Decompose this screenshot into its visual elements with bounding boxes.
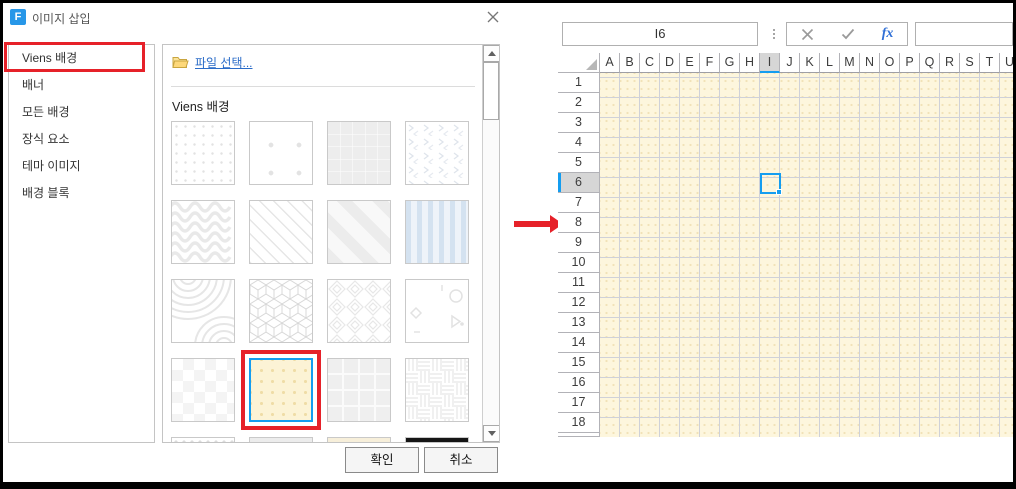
row-header-partial [558,433,600,437]
row-header-8[interactable]: 8 [558,213,600,233]
column-header-S[interactable]: S [960,53,980,73]
row-header-6[interactable]: 6 [558,173,600,193]
pattern-thumb-waves[interactable] [171,200,235,264]
column-header-U[interactable]: U [1000,53,1013,73]
pattern-thumb-chevrons[interactable] [405,121,469,185]
sidebar-item-0[interactable]: Viens 배경 [9,45,154,72]
column-header-A[interactable]: A [600,53,620,73]
column-header-L[interactable]: L [820,53,840,73]
pattern-thumb-dotted-strip[interactable] [171,437,235,443]
pattern-thumb-cream-strip[interactable] [327,437,391,443]
row-header-15[interactable]: 15 [558,353,600,373]
row-header-1[interactable]: 1 [558,73,600,93]
column-header-N[interactable]: N [860,53,880,73]
formula-toolbar: fx [786,22,908,46]
column-header-M[interactable]: M [840,53,860,73]
row-header-17[interactable]: 17 [558,393,600,413]
row-header-3[interactable]: 3 [558,113,600,133]
column-header-G[interactable]: G [720,53,740,73]
row-header-14[interactable]: 14 [558,333,600,353]
pattern-thumb-weave[interactable] [405,358,469,422]
column-headers: ABCDEFGHIJKLMNOPQRSTU [600,53,1013,73]
pattern-section-title: Viens 배경 [172,96,230,115]
row-header-4[interactable]: 4 [558,133,600,153]
sidebar-item-2[interactable]: 모든 배경 [9,99,154,126]
scroll-down-icon[interactable] [483,425,500,442]
formula-input[interactable] [915,22,1013,46]
row-header-12[interactable]: 12 [558,293,600,313]
name-box-menu-icon[interactable] [770,25,778,43]
sidebar-item-5[interactable]: 배경 블록 [9,180,154,207]
dialog-sidebar: Viens 배경배너모든 배경장식 요소테마 이미지배경 블록 [8,44,155,443]
selected-cell-outline[interactable] [760,173,781,194]
cell-name-box[interactable]: I6 [562,22,758,46]
column-header-P[interactable]: P [900,53,920,73]
column-header-I[interactable]: I [760,53,780,73]
divider [171,86,475,87]
select-all-triangle-icon [586,59,597,70]
pattern-thumb-arcs[interactable] [171,279,235,343]
select-all-corner[interactable] [558,53,600,73]
frame-border-top [0,0,1016,3]
row-header-5[interactable]: 5 [558,153,600,173]
column-header-E[interactable]: E [680,53,700,73]
pattern-grid [171,121,469,443]
ok-button[interactable]: 확인 [345,447,419,473]
pattern-thumb-diag-thin[interactable] [249,200,313,264]
row-headers: 123456789101112131415161718 [558,73,600,437]
pattern-thumb-yellow-dots[interactable] [249,358,313,422]
column-header-O[interactable]: O [880,53,900,73]
row-header-9[interactable]: 9 [558,233,600,253]
row-header-2[interactable]: 2 [558,93,600,113]
frame-border-bottom [0,482,1016,489]
row-header-7[interactable]: 7 [558,193,600,213]
pattern-thumb-diag-wide[interactable] [327,200,391,264]
pattern-thumb-textured-tiles[interactable] [327,358,391,422]
cancel-button[interactable]: 취소 [424,447,498,473]
row-header-18[interactable]: 18 [558,413,600,433]
frame-border-left [0,0,3,489]
sheet-cells-area[interactable] [600,73,1013,437]
row-header-11[interactable]: 11 [558,273,600,293]
file-select-link[interactable]: 파일 선택... [172,53,253,71]
pattern-panel: 파일 선택... Viens 배경 [162,44,500,443]
sidebar-item-1[interactable]: 배너 [9,72,154,99]
row-header-16[interactable]: 16 [558,373,600,393]
app-logo-icon: F [10,9,26,25]
pattern-thumb-gray-strip[interactable] [249,437,313,443]
screenshot-page: F 이미지 삽입 Viens 배경배너모든 배경장식 요소테마 이미지배경 블록… [0,0,1016,489]
column-header-D[interactable]: D [660,53,680,73]
pattern-thumb-black-strip[interactable] [405,437,469,443]
scrollbar-thumb[interactable] [483,62,499,120]
fill-handle[interactable] [776,189,782,195]
file-select-label: 파일 선택... [195,54,253,71]
sidebar-item-4[interactable]: 테마 이미지 [9,153,154,180]
pattern-thumb-shapes[interactable] [405,279,469,343]
column-header-C[interactable]: C [640,53,660,73]
pattern-thumb-squares-grid[interactable] [327,121,391,185]
dialog-title: 이미지 삽입 [32,10,91,27]
folder-icon [172,55,189,69]
pattern-thumb-blue-stripes[interactable] [405,200,469,264]
sidebar-item-3[interactable]: 장식 요소 [9,126,154,153]
row-header-13[interactable]: 13 [558,313,600,333]
column-header-T[interactable]: T [980,53,1000,73]
column-header-K[interactable]: K [800,53,820,73]
column-header-H[interactable]: H [740,53,760,73]
column-header-R[interactable]: R [940,53,960,73]
scrollbar[interactable] [482,45,499,442]
scroll-up-icon[interactable] [483,45,500,62]
pattern-thumb-checkerboard[interactable] [171,358,235,422]
function-icon[interactable]: fx [882,26,894,42]
cancel-entry-icon[interactable] [801,28,814,41]
close-icon[interactable] [484,8,502,26]
column-header-F[interactable]: F [700,53,720,73]
row-header-10[interactable]: 10 [558,253,600,273]
confirm-entry-icon[interactable] [841,28,855,40]
column-header-Q[interactable]: Q [920,53,940,73]
column-header-J[interactable]: J [780,53,800,73]
pattern-thumb-sparse-dots[interactable] [249,121,313,185]
pattern-thumb-greek[interactable] [327,279,391,343]
column-header-B[interactable]: B [620,53,640,73]
pattern-thumb-dots-grid[interactable] [171,121,235,185]
pattern-thumb-cubes[interactable] [249,279,313,343]
red-arrow [514,221,550,227]
